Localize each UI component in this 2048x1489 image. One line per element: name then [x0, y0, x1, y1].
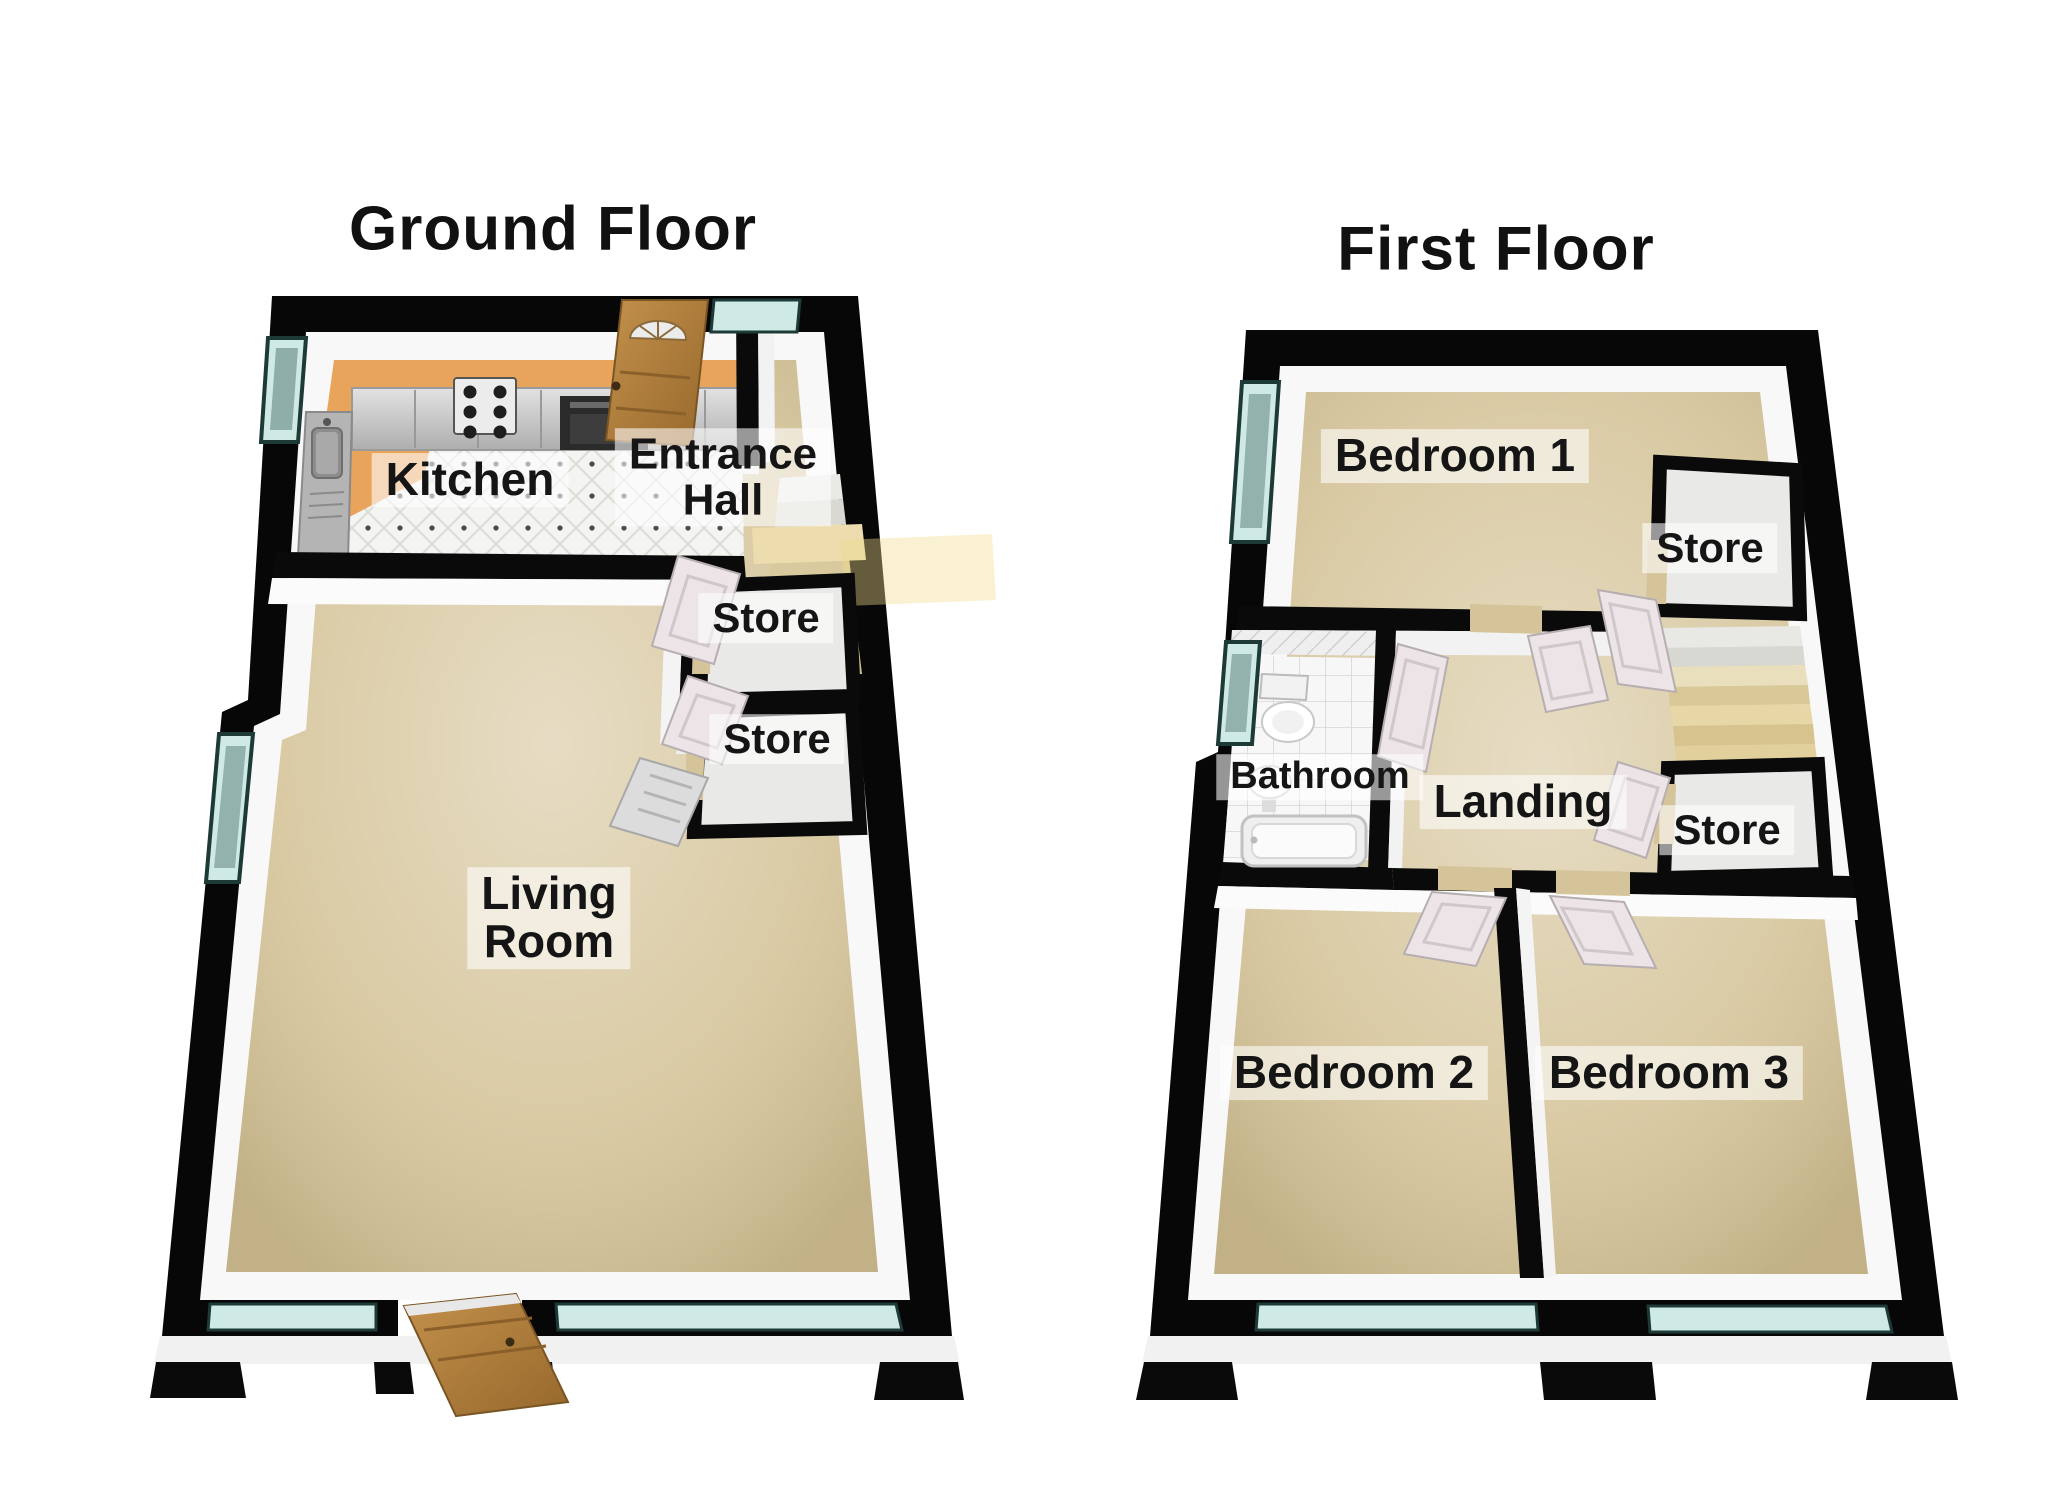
bedroom2-window: [1256, 1304, 1538, 1330]
first-floor-plan: [1136, 330, 1958, 1400]
first-foot-left: [1136, 1362, 1238, 1400]
first-foot-right: [1866, 1362, 1958, 1400]
first-store-1-opening: [1646, 540, 1668, 604]
first-foot-center: [1540, 1362, 1656, 1400]
toilet: [1260, 674, 1314, 742]
sink-bowl-inner: [316, 432, 338, 474]
first-store-1-room: [1656, 462, 1800, 614]
ground-foot-right: [874, 1362, 964, 1400]
first-stairs: [1660, 626, 1817, 762]
stairs-overhang-glow: [840, 534, 996, 606]
entrance-sidelight-window: [711, 300, 800, 332]
sink-faucet: [323, 418, 331, 426]
bedroom3-door-opening: [1556, 870, 1630, 896]
first-wall-base: [1142, 1336, 1952, 1364]
ground-foot-left: [150, 1362, 246, 1398]
bathtub: [1242, 816, 1366, 866]
kitchen-hall-divider-face: [758, 318, 775, 462]
bathroom-bottom-wall-face: [1214, 886, 1396, 912]
ground-foot-door-left: [374, 1362, 414, 1394]
hob: [454, 378, 516, 434]
divider-jamb: [737, 466, 759, 474]
front-door: [606, 300, 708, 446]
living-window-bottom-right: [556, 1304, 902, 1330]
ground-floor-plan: [150, 296, 996, 1416]
floorplan-canvas: Ground Floor First Floor Kitchen Entranc…: [0, 0, 2048, 1489]
ground-wall-base: [154, 1336, 960, 1364]
bedroom3-window: [1648, 1306, 1892, 1332]
living-window-bottom-left: [208, 1304, 376, 1330]
floorplan-drawing: [0, 0, 2048, 1489]
bedroom1-door-opening: [1470, 604, 1542, 634]
first-store-2-room: [1664, 764, 1826, 878]
